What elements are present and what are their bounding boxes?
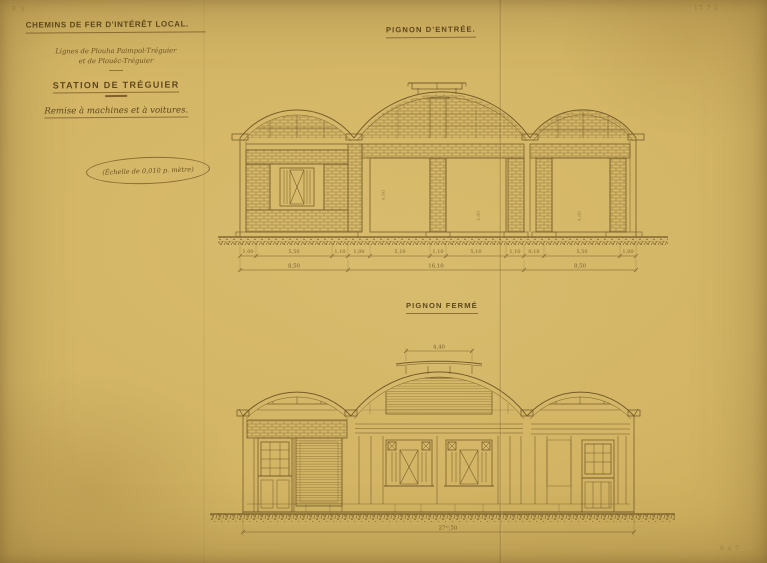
- left-bay-window: [268, 164, 326, 210]
- overall-width-label: 27ᵐ,50: [439, 526, 458, 532]
- centre-window-a: [384, 440, 434, 486]
- scale-note: (Échelle de 0,010 p. mètre): [86, 155, 211, 186]
- svg-text:0,18: 0,18: [528, 249, 539, 255]
- divider-dash: [109, 70, 123, 71]
- svg-text:1,00: 1,00: [622, 249, 633, 255]
- right-bay-facade: [531, 424, 630, 512]
- left-bay-facade: [247, 420, 347, 512]
- svg-text:4,00: 4,00: [577, 211, 583, 221]
- svg-text:1,00: 1,00: [242, 249, 253, 255]
- svg-text:3,80: 3,80: [476, 211, 482, 221]
- dimension-labels-row1: 1,00 5,50 1,10 1,00 5,10 1,10 5,10 1,10 …: [242, 249, 633, 255]
- svg-text:1,10: 1,10: [334, 249, 345, 255]
- divider-dash: [105, 95, 127, 97]
- pignon-ferme-elevation: 4,40 27ᵐ,50: [210, 336, 675, 546]
- svg-text:1,10: 1,10: [509, 249, 520, 255]
- centre-pillar: [430, 158, 446, 232]
- corner-mark-top-right: 17 7 2: [694, 5, 719, 12]
- station-title: STATION DE TRÉGUIER: [26, 79, 206, 97]
- top-drawing-title: PIGNON D'ENTRÉE.: [386, 25, 476, 39]
- building-subtitle: Remise à machines et à voitures.: [26, 105, 206, 116]
- corner-mark-top-left: F 3: [12, 6, 25, 13]
- bottom-drawing-title: PIGNON FERMÉ: [406, 301, 478, 314]
- document-title: CHEMINS DE FER D'INTÉRÊT LOCAL.: [26, 19, 206, 33]
- title-block: CHEMINS DE FER D'INTÉRÊT LOCAL. Lignes d…: [26, 19, 207, 116]
- svg-text:4,00: 4,00: [381, 190, 387, 200]
- svg-text:1,10: 1,10: [432, 249, 443, 255]
- svg-text:8,50: 8,50: [574, 264, 587, 270]
- door-opening: [370, 158, 430, 232]
- dimension-labels-row2: 8,50 16,10 8,50: [288, 264, 587, 270]
- railway-lines-subtitle: Lignes de Plouha Paimpol-Tréguier et de …: [26, 46, 206, 71]
- door-opening: [446, 158, 506, 232]
- centre-bay-facade: [355, 424, 523, 504]
- svg-text:5,50: 5,50: [288, 249, 299, 255]
- ground-line: [210, 514, 675, 522]
- left-tympanum: [254, 384, 340, 410]
- corner-mark-bottom-right: 6 a 7: [720, 545, 740, 552]
- left-door: [258, 438, 292, 512]
- svg-text:8,50: 8,50: [288, 264, 301, 270]
- ground-line: [218, 237, 668, 245]
- pignon-entree-elevation: 4,00 3,80 4,00 1,00 5,50 1,10 1,00 5,10 …: [218, 80, 668, 285]
- right-tympanum: [537, 384, 623, 410]
- brick-pier: [348, 144, 362, 232]
- svg-text:5,10: 5,10: [470, 249, 481, 255]
- paper-stain: [0, 370, 240, 563]
- lantern-width-label: 4,40: [433, 345, 446, 351]
- svg-text:1,00: 1,00: [353, 249, 364, 255]
- svg-text:16,10: 16,10: [428, 264, 444, 270]
- line-name-1: Lignes de Plouha Paimpol-Tréguier: [55, 47, 176, 56]
- centre-tympanum: [362, 378, 516, 414]
- right-door: [582, 440, 614, 512]
- left-bay: [236, 106, 358, 237]
- vertical-dimensions: 4,00 3,80 4,00: [381, 190, 583, 221]
- svg-text:5,50: 5,50: [576, 249, 587, 255]
- line-name-2: et de Plouëc-Tréguier: [79, 57, 154, 66]
- drawing-sheet: CHEMINS DE FER D'INTÉRÊT LOCAL. Lignes d…: [0, 0, 767, 563]
- centre-window-b: [444, 440, 494, 486]
- svg-text:5,10: 5,10: [394, 249, 405, 255]
